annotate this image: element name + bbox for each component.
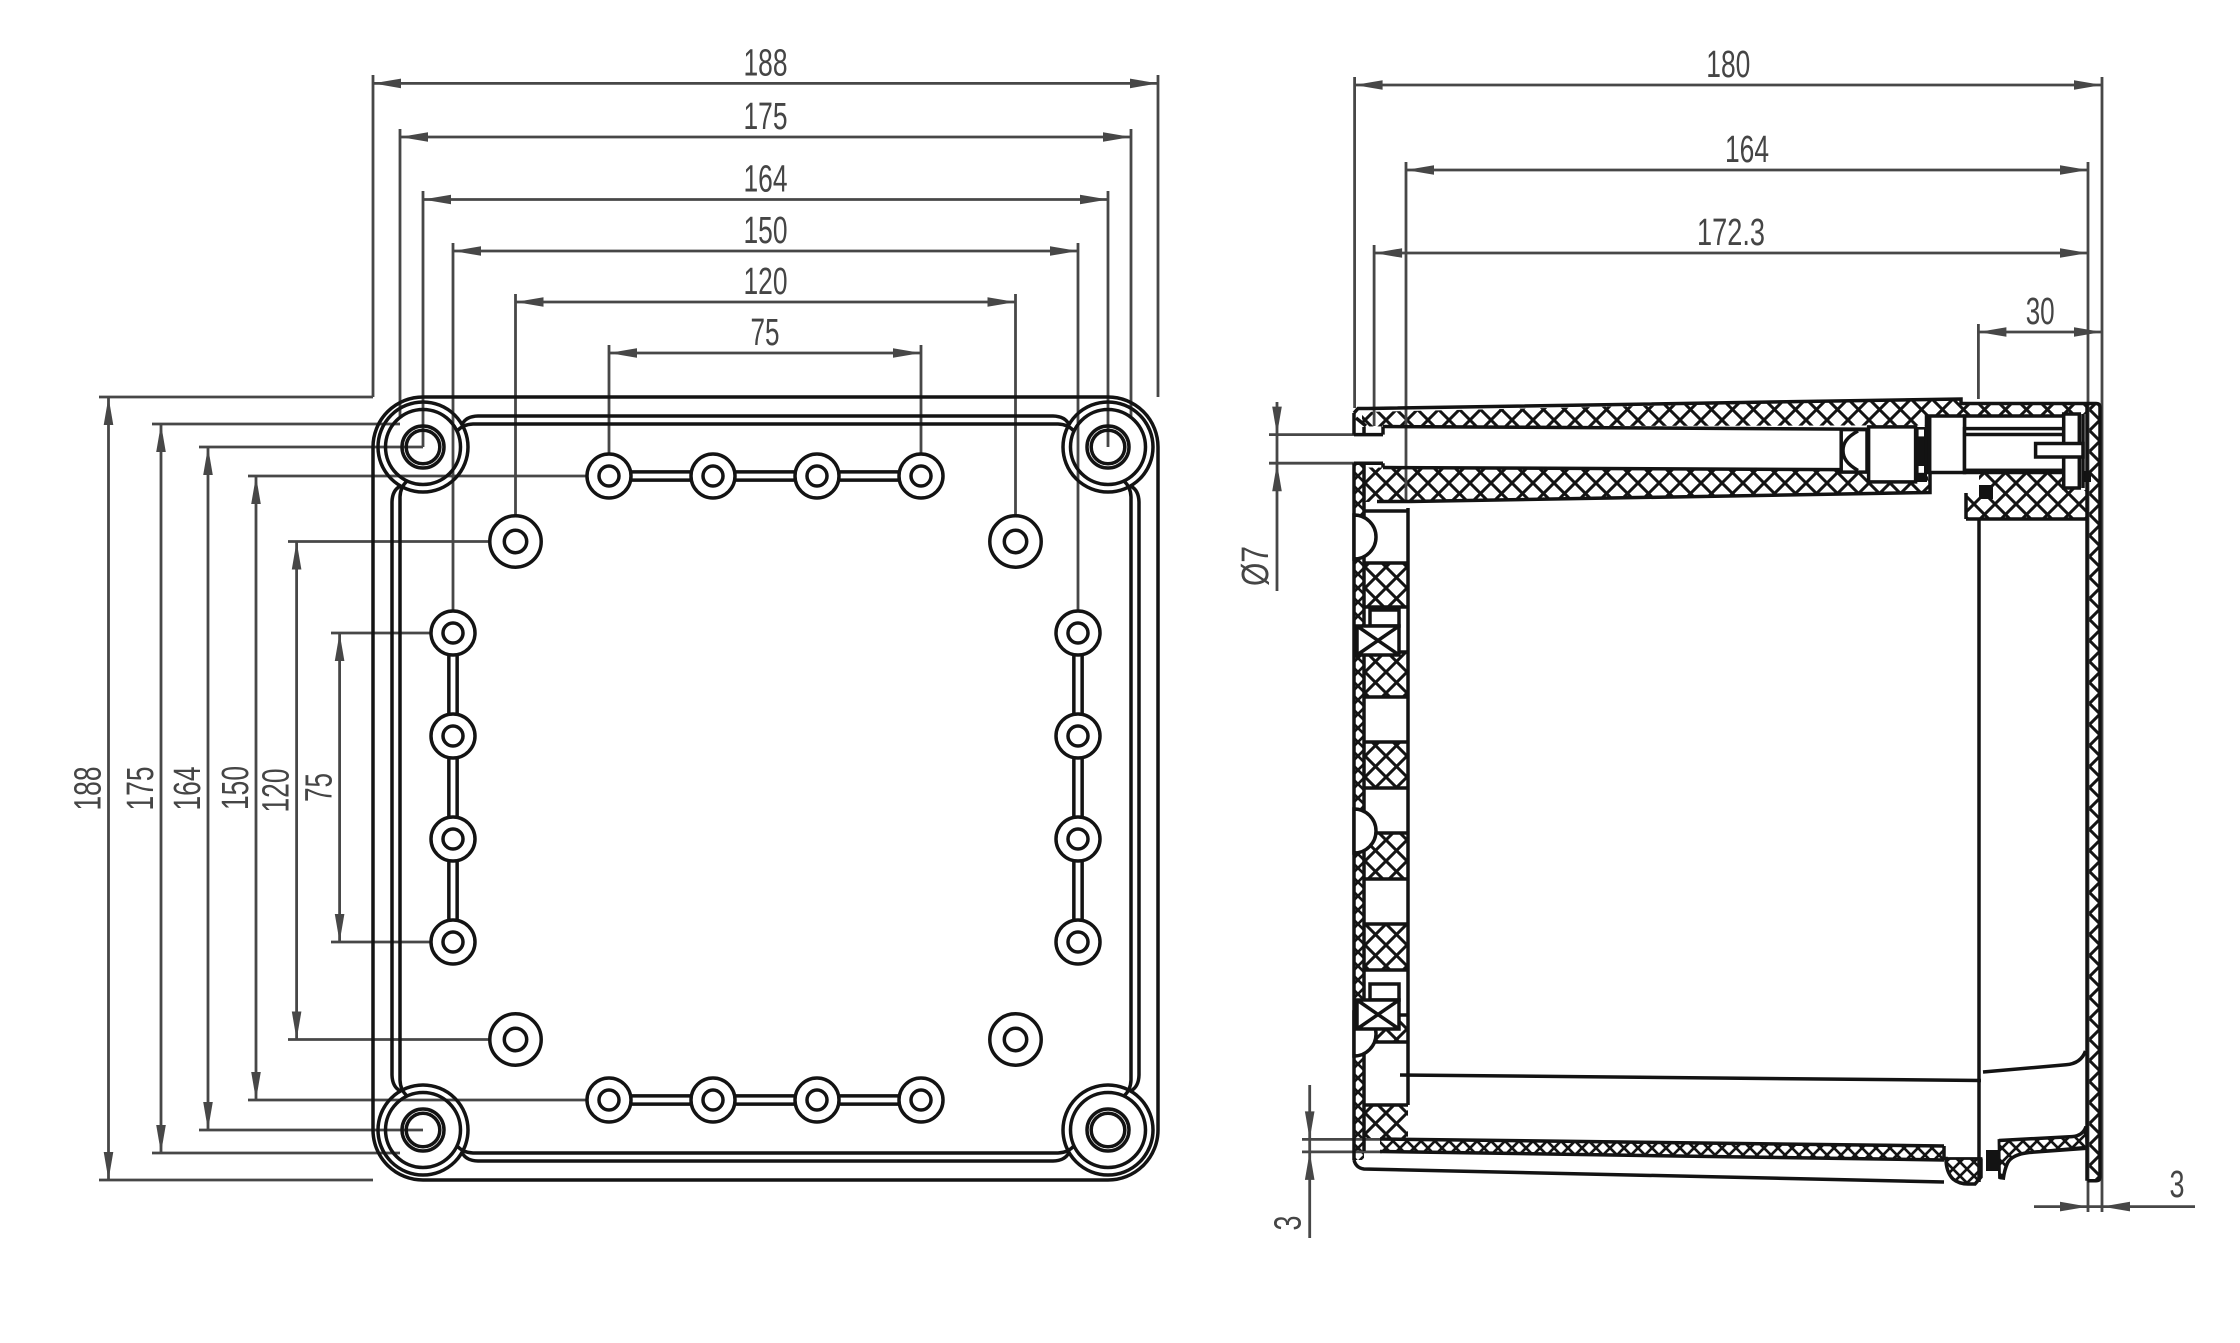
svg-text:75: 75: [299, 773, 341, 802]
svg-text:3: 3: [1268, 1216, 1310, 1231]
svg-text:172.3: 172.3: [1697, 212, 1765, 254]
svg-text:75: 75: [751, 312, 780, 354]
svg-text:164: 164: [167, 767, 209, 811]
svg-text:150: 150: [215, 766, 257, 810]
svg-text:175: 175: [744, 96, 788, 138]
svg-text:180: 180: [1706, 44, 1750, 86]
svg-text:150: 150: [744, 210, 788, 252]
svg-text:3: 3: [2170, 1164, 2185, 1206]
svg-text:30: 30: [2026, 291, 2055, 333]
svg-text:120: 120: [256, 769, 298, 813]
svg-text:188: 188: [68, 767, 110, 811]
svg-text:164: 164: [744, 159, 788, 201]
svg-text:120: 120: [744, 261, 788, 303]
svg-text:175: 175: [120, 767, 162, 811]
svg-text:Ø7: Ø7: [1235, 546, 1277, 586]
svg-text:164: 164: [1725, 129, 1769, 171]
svg-text:188: 188: [744, 42, 788, 84]
